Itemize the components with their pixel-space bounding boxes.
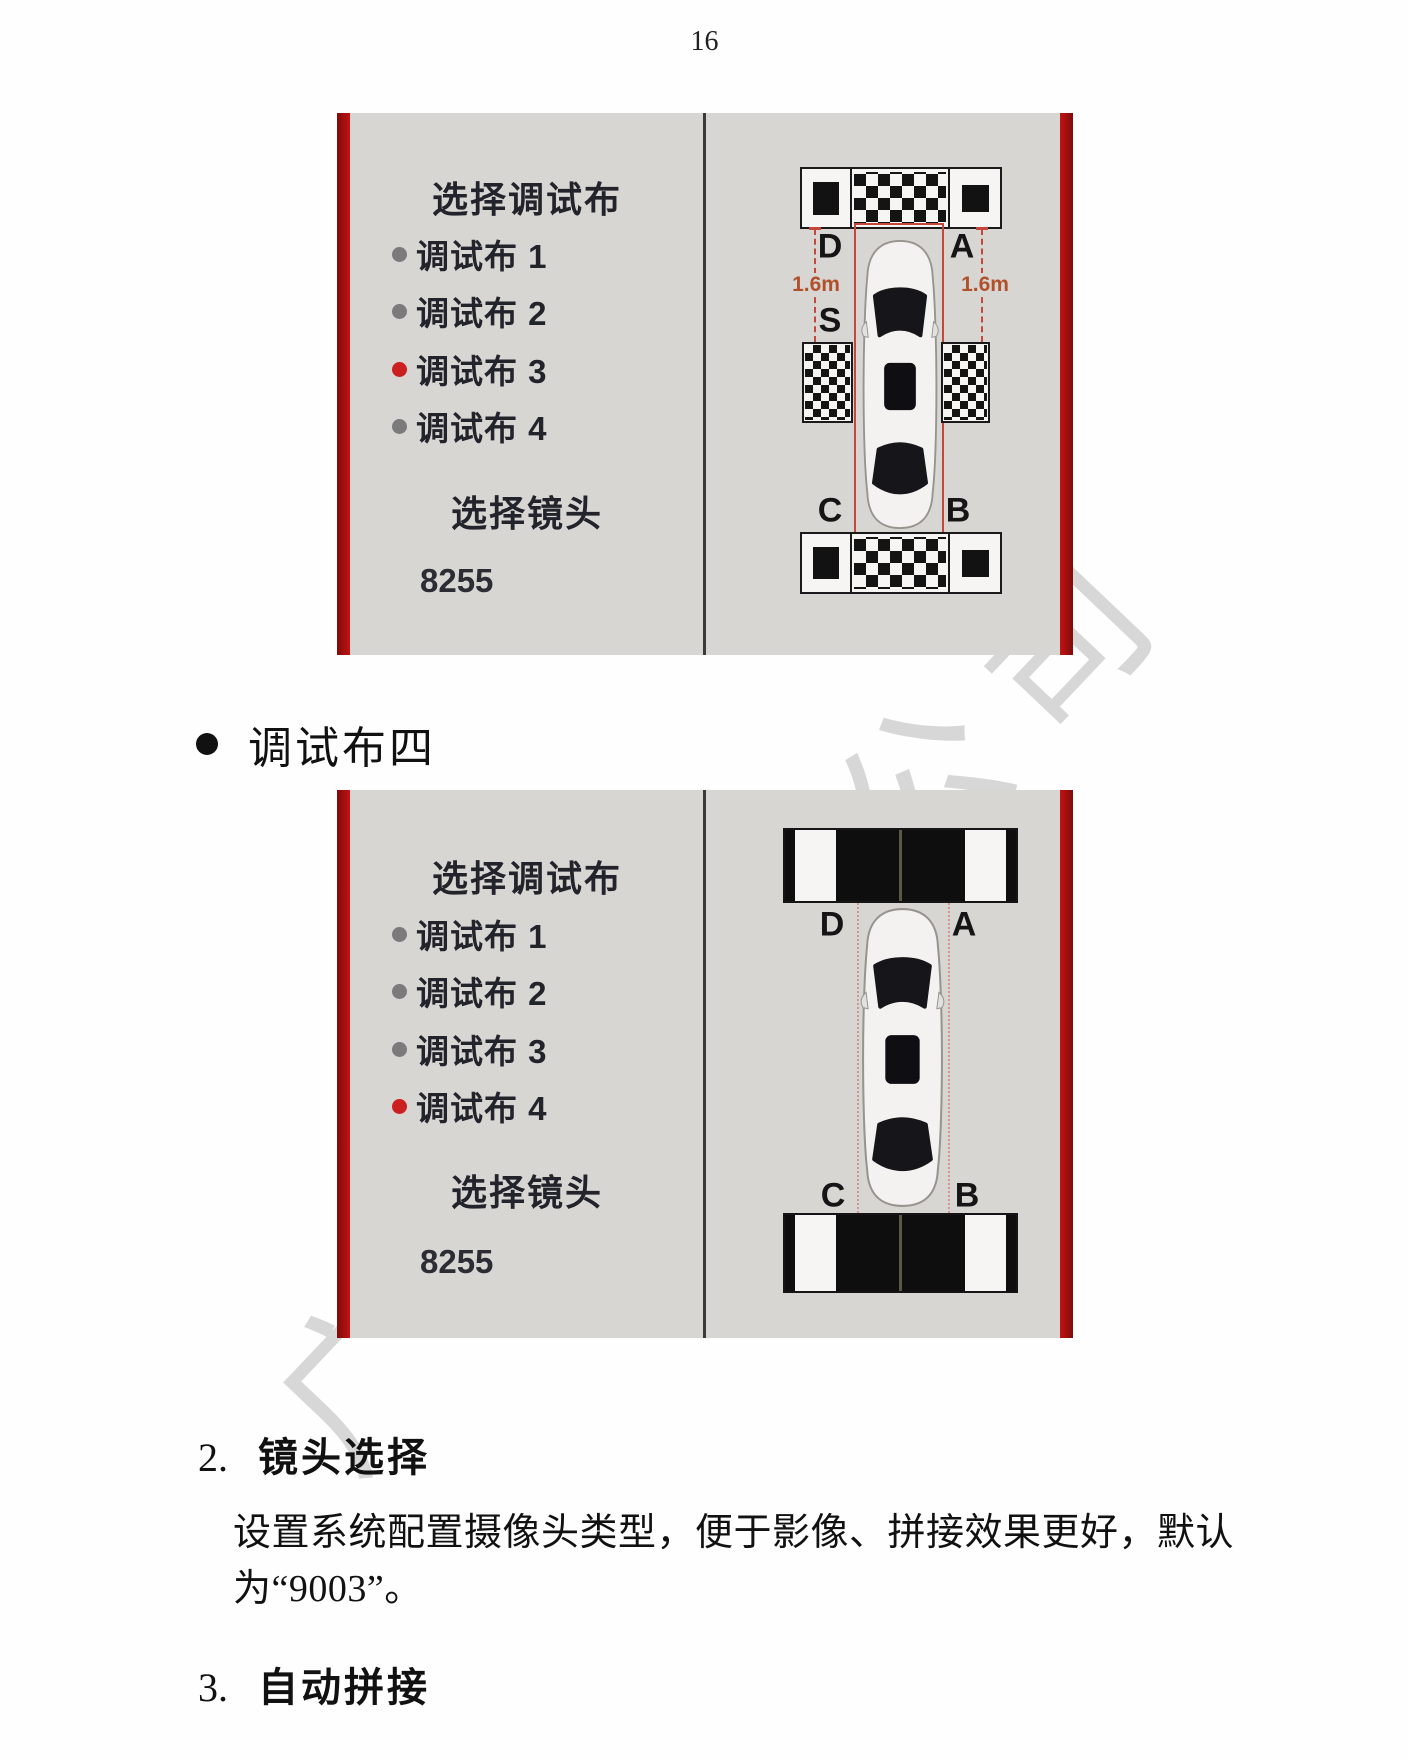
panel-divider bbox=[703, 113, 706, 655]
lens-select-title: 选择镜头 bbox=[367, 1164, 687, 1216]
board-cell-checker bbox=[850, 534, 950, 592]
corner-label-b: B bbox=[955, 1177, 980, 1216]
side-checkerboard-left bbox=[802, 342, 853, 423]
corner-label-d: D bbox=[818, 228, 843, 267]
corner-label-b: B bbox=[946, 492, 971, 531]
bullet-label: 调试布四 bbox=[248, 712, 436, 776]
screenshot-border-left bbox=[337, 790, 350, 1338]
board-cell-square bbox=[950, 534, 1000, 592]
screenshot-border-left bbox=[337, 113, 350, 655]
radio-label: 调试布 1 bbox=[416, 910, 548, 958]
radio-cloth-1[interactable]: 调试布 1 bbox=[392, 917, 548, 951]
measure-label-right: 1.6m bbox=[959, 273, 1011, 297]
corner-label-d: D bbox=[820, 906, 845, 945]
corner-label-a: A bbox=[950, 228, 975, 267]
measure-label-left: 1.6m bbox=[790, 273, 842, 297]
radio-dot bbox=[392, 304, 407, 319]
page-number: 16 bbox=[0, 26, 1409, 58]
car-top-view bbox=[858, 237, 942, 532]
radio-cloth-1[interactable]: 调试布 1 bbox=[392, 237, 548, 271]
lens-select-title: 选择镜头 bbox=[367, 485, 687, 537]
board-cell-checker bbox=[850, 169, 950, 227]
radio-dot bbox=[392, 927, 407, 942]
screenshot-border-right bbox=[1060, 113, 1073, 655]
section-heading-2: 2. 镜头选择 bbox=[198, 1425, 430, 1483]
section-title: 镜头选择 bbox=[258, 1425, 430, 1483]
radio-label: 调试布 3 bbox=[416, 1025, 548, 1073]
calibration-board-bottom bbox=[800, 532, 1002, 594]
bullet-icon bbox=[196, 733, 218, 755]
panel-divider bbox=[703, 790, 706, 1338]
section-heading-3: 3. 自动拼接 bbox=[198, 1655, 430, 1713]
corner-label-a: A bbox=[952, 906, 977, 945]
radio-dot bbox=[392, 419, 407, 434]
radio-dot bbox=[392, 1099, 407, 1114]
radio-dot bbox=[392, 984, 407, 999]
board-cell-square bbox=[802, 534, 850, 592]
document-page: 16 广州有限公司 选择调试布 调试布 1 调试布 2 调试布 3 调试布 4 … bbox=[0, 0, 1409, 1759]
radio-cloth-2[interactable]: 调试布 2 bbox=[392, 974, 548, 1008]
guide-line-right bbox=[948, 903, 950, 1213]
section-title: 自动拼接 bbox=[258, 1655, 430, 1713]
radio-label: 调试布 2 bbox=[416, 287, 548, 335]
section-number: 3. bbox=[198, 1664, 228, 1711]
board-cell-square bbox=[950, 169, 1000, 227]
radio-dot bbox=[392, 247, 407, 262]
bullet-item-cloth-four: 调试布四 bbox=[196, 712, 436, 776]
paragraph-line: 设置系统配置摄像头类型，便于影像、拼接效果更好，默认 bbox=[233, 1505, 1243, 1561]
radio-cloth-4[interactable]: 调试布 4 bbox=[392, 409, 548, 443]
radio-label: 调试布 2 bbox=[416, 967, 548, 1015]
radio-label: 调试布 4 bbox=[416, 402, 548, 450]
cloth-select-title: 选择调试布 bbox=[367, 171, 687, 223]
screenshot-calibration-cloth-3: 选择调试布 调试布 1 调试布 2 调试布 3 调试布 4 选择镜头 8255 … bbox=[337, 113, 1073, 655]
radio-label: 调试布 4 bbox=[416, 1082, 548, 1130]
screenshot-calibration-cloth-4: 选择调试布 调试布 1 调试布 2 调试布 3 调试布 4 选择镜头 8255 bbox=[337, 790, 1073, 1338]
section-2-paragraph: 设置系统配置摄像头类型，便于影像、拼接效果更好，默认 为“9003”。 bbox=[233, 1505, 1243, 1617]
lens-value[interactable]: 8255 bbox=[420, 562, 493, 600]
cloth-select-title: 选择调试布 bbox=[367, 850, 687, 902]
side-checkerboard-right bbox=[941, 342, 990, 423]
radio-dot bbox=[392, 362, 407, 377]
board-cell-square bbox=[802, 169, 850, 227]
calibration-board-top bbox=[800, 167, 1002, 229]
screenshot-border-right bbox=[1060, 790, 1073, 1338]
paragraph-line: 为“9003”。 bbox=[233, 1561, 1243, 1617]
lens-value[interactable]: 8255 bbox=[420, 1243, 493, 1281]
side-label-s: S bbox=[819, 302, 842, 341]
radio-cloth-3[interactable]: 调试布 3 bbox=[392, 1032, 548, 1066]
car-top-view bbox=[857, 905, 948, 1210]
radio-cloth-3[interactable]: 调试布 3 bbox=[392, 352, 548, 386]
corner-label-c: C bbox=[821, 1177, 846, 1216]
radio-dot bbox=[392, 1042, 407, 1057]
stripe-board-top bbox=[783, 828, 1018, 903]
section-number: 2. bbox=[198, 1434, 228, 1481]
radio-label: 调试布 3 bbox=[416, 345, 548, 393]
stripe-board-bottom bbox=[783, 1213, 1018, 1293]
radio-cloth-4[interactable]: 调试布 4 bbox=[392, 1089, 548, 1123]
radio-cloth-2[interactable]: 调试布 2 bbox=[392, 294, 548, 328]
radio-label: 调试布 1 bbox=[416, 230, 548, 278]
corner-label-c: C bbox=[818, 492, 843, 531]
